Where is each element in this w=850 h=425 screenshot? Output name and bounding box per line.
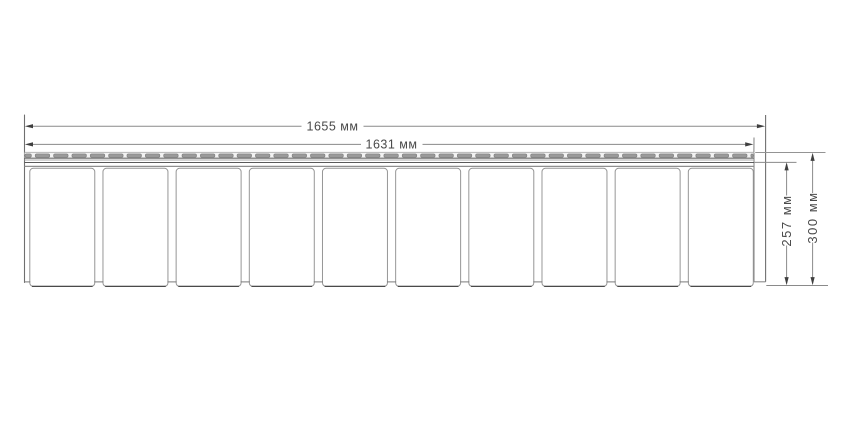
svg-text:300 мм: 300 мм	[805, 191, 820, 243]
svg-text:1631 мм: 1631 мм	[366, 138, 418, 152]
svg-text:1655 мм: 1655 мм	[307, 119, 359, 133]
svg-text:257 мм: 257 мм	[779, 194, 794, 246]
